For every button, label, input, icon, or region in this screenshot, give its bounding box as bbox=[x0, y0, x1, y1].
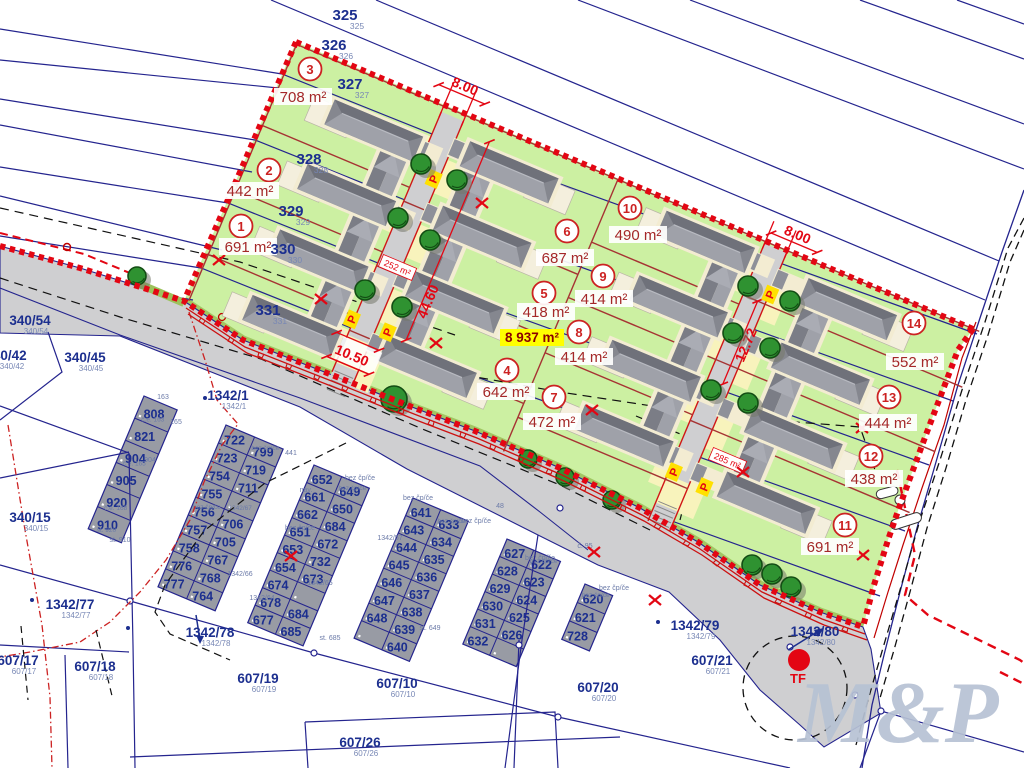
svg-text:č.e. 168: č.e. 168 bbox=[104, 505, 128, 512]
svg-text:640: 640 bbox=[387, 640, 408, 654]
svg-text:414 m²: 414 m² bbox=[581, 291, 628, 308]
svg-text:607/10: 607/10 bbox=[391, 690, 416, 699]
svg-text:607/20: 607/20 bbox=[592, 694, 617, 703]
svg-text:643: 643 bbox=[403, 524, 424, 538]
svg-text:bez čp/če: bez čp/če bbox=[403, 495, 433, 502]
svg-text:441: 441 bbox=[285, 450, 297, 457]
svg-text:723: 723 bbox=[217, 452, 238, 466]
svg-text:757: 757 bbox=[186, 523, 207, 537]
svg-text:bez čp/če: bez čp/če bbox=[193, 504, 221, 511]
svg-text:340/15: 340/15 bbox=[9, 510, 51, 525]
svg-text:607/17: 607/17 bbox=[12, 667, 37, 676]
svg-text:442 m²: 442 m² bbox=[227, 183, 274, 200]
svg-text:607/19: 607/19 bbox=[252, 685, 277, 694]
svg-text:607/21: 607/21 bbox=[691, 653, 733, 668]
svg-text:340/45: 340/45 bbox=[79, 364, 104, 373]
svg-text:638: 638 bbox=[402, 605, 423, 619]
svg-text:705: 705 bbox=[215, 535, 236, 549]
svg-text:340/42: 340/42 bbox=[0, 362, 25, 371]
svg-text:nav.: nav. bbox=[300, 487, 313, 494]
svg-text:1342/80: 1342/80 bbox=[807, 638, 836, 647]
svg-text:1342/64: 1342/64 bbox=[249, 595, 274, 602]
svg-text:905: 905 bbox=[116, 474, 137, 488]
svg-text:646: 646 bbox=[381, 576, 402, 590]
svg-text:755: 755 bbox=[201, 488, 222, 502]
svg-text:607/19: 607/19 bbox=[237, 671, 278, 686]
svg-text:777: 777 bbox=[164, 577, 185, 591]
svg-text:776: 776 bbox=[171, 559, 192, 573]
svg-text:706: 706 bbox=[222, 518, 243, 532]
svg-text:7: 7 bbox=[550, 390, 557, 405]
svg-text:M&P: M&P bbox=[796, 665, 1000, 762]
svg-text:bez čp/če: bez čp/če bbox=[525, 555, 555, 562]
svg-text:8: 8 bbox=[575, 325, 582, 340]
svg-text:438 m²: 438 m² bbox=[851, 471, 898, 488]
svg-text:552 m²: 552 m² bbox=[892, 354, 939, 371]
svg-text:634: 634 bbox=[431, 535, 452, 549]
svg-text:708 m²: 708 m² bbox=[280, 89, 327, 106]
svg-text:607/20: 607/20 bbox=[577, 680, 618, 695]
svg-text:607/18: 607/18 bbox=[74, 659, 116, 674]
svg-text:11: 11 bbox=[838, 518, 852, 533]
svg-text:768: 768 bbox=[200, 571, 221, 585]
svg-text:904: 904 bbox=[144, 457, 156, 464]
svg-text:732: 732 bbox=[310, 555, 331, 569]
svg-text:4: 4 bbox=[503, 363, 511, 378]
svg-text:607/18: 607/18 bbox=[89, 673, 114, 682]
svg-text:165: 165 bbox=[170, 419, 182, 426]
svg-text:641: 641 bbox=[411, 506, 432, 520]
svg-text:490 m²: 490 m² bbox=[615, 227, 662, 244]
svg-text:444 m²: 444 m² bbox=[865, 415, 912, 432]
svg-text:163: 163 bbox=[157, 394, 169, 401]
svg-text:607/26: 607/26 bbox=[354, 749, 379, 758]
svg-text:627: 627 bbox=[504, 547, 525, 561]
svg-text:st. 649: st. 649 bbox=[419, 625, 440, 632]
svg-text:bez čp/če: bez čp/če bbox=[599, 585, 629, 592]
svg-text:691 m²: 691 m² bbox=[807, 539, 854, 556]
svg-text:687 m²: 687 m² bbox=[542, 250, 589, 267]
svg-text:645: 645 bbox=[389, 559, 410, 573]
svg-text:14: 14 bbox=[907, 316, 922, 331]
svg-text:č.e. 165: č.e. 165 bbox=[123, 461, 147, 468]
svg-text:754: 754 bbox=[209, 470, 230, 484]
svg-text:728: 728 bbox=[567, 630, 588, 644]
svg-text:644: 644 bbox=[396, 541, 417, 555]
svg-text:326: 326 bbox=[339, 51, 353, 61]
svg-text:340/15: 340/15 bbox=[24, 524, 49, 533]
svg-text:635: 635 bbox=[424, 553, 445, 567]
svg-text:1342/65: 1342/65 bbox=[307, 580, 332, 587]
svg-text:340/54: 340/54 bbox=[24, 327, 49, 336]
svg-text:331: 331 bbox=[273, 316, 287, 326]
svg-text:685: 685 bbox=[281, 625, 302, 639]
svg-text:691 m²: 691 m² bbox=[225, 239, 272, 256]
svg-text:st. 685: st. 685 bbox=[319, 635, 340, 642]
svg-text:418 m²: 418 m² bbox=[523, 304, 570, 321]
svg-text:340/54: 340/54 bbox=[9, 313, 51, 328]
svg-text:bez čp/če: bez čp/če bbox=[251, 445, 279, 452]
svg-text:607/10: 607/10 bbox=[376, 676, 417, 691]
svg-text:636: 636 bbox=[416, 570, 437, 584]
svg-text:48: 48 bbox=[496, 503, 504, 510]
svg-text:12: 12 bbox=[864, 449, 878, 464]
svg-text:3: 3 bbox=[306, 62, 313, 77]
svg-text:684: 684 bbox=[325, 520, 346, 534]
svg-text:5: 5 bbox=[540, 286, 547, 301]
svg-text:bez čp/če: bez čp/če bbox=[461, 518, 491, 525]
svg-text:1342/1: 1342/1 bbox=[207, 388, 249, 403]
svg-text:325: 325 bbox=[350, 21, 364, 31]
svg-text:684: 684 bbox=[288, 607, 309, 621]
svg-text:630: 630 bbox=[482, 600, 503, 614]
svg-text:631: 631 bbox=[475, 617, 496, 631]
svg-text:10: 10 bbox=[623, 201, 637, 216]
svg-text:628: 628 bbox=[497, 565, 518, 579]
svg-text:bez čp/če: bez čp/če bbox=[338, 485, 366, 492]
svg-text:764: 764 bbox=[192, 589, 213, 603]
svg-text:1342/77: 1342/77 bbox=[62, 611, 91, 620]
svg-text:1342/78: 1342/78 bbox=[202, 639, 231, 648]
svg-text:329: 329 bbox=[296, 217, 310, 227]
svg-text:674: 674 bbox=[268, 578, 289, 592]
svg-text:č.e. 163: č.e. 163 bbox=[141, 416, 165, 423]
svg-text:1342/77: 1342/77 bbox=[46, 597, 95, 612]
svg-text:662: 662 bbox=[297, 508, 318, 522]
svg-text:642 m²: 642 m² bbox=[483, 384, 530, 401]
svg-text:639: 639 bbox=[394, 623, 415, 637]
svg-text:607/17: 607/17 bbox=[0, 653, 39, 668]
svg-text:340/45: 340/45 bbox=[64, 350, 106, 365]
svg-text:711: 711 bbox=[238, 482, 258, 496]
svg-text:8 937 m²: 8 937 m² bbox=[505, 330, 560, 345]
svg-text:st. 920: st. 920 bbox=[97, 527, 117, 534]
svg-text:672: 672 bbox=[317, 537, 338, 551]
svg-text:767: 767 bbox=[207, 553, 228, 567]
svg-text:650: 650 bbox=[332, 502, 353, 516]
svg-text:648: 648 bbox=[367, 611, 388, 625]
svg-text:472 m²: 472 m² bbox=[529, 414, 576, 431]
svg-text:722: 722 bbox=[224, 434, 245, 448]
svg-text:414 m²: 414 m² bbox=[561, 349, 608, 366]
svg-text:677: 677 bbox=[253, 613, 274, 627]
svg-text:1342/66: 1342/66 bbox=[227, 571, 252, 578]
svg-text:758: 758 bbox=[179, 541, 200, 555]
svg-text:1: 1 bbox=[237, 219, 244, 234]
svg-text:340/42: 340/42 bbox=[0, 348, 27, 363]
svg-text:1342/78: 1342/78 bbox=[186, 625, 235, 640]
svg-text:9: 9 bbox=[599, 269, 606, 284]
svg-text:330: 330 bbox=[288, 255, 302, 265]
svg-text:607/26: 607/26 bbox=[339, 735, 381, 750]
svg-text:1342/57: 1342/57 bbox=[377, 535, 402, 542]
svg-text:2: 2 bbox=[265, 163, 272, 178]
svg-text:bez čp/če: bez čp/če bbox=[582, 592, 610, 599]
svg-text:bez čp/če: bez čp/če bbox=[285, 525, 315, 532]
svg-text:st. 910: st. 910 bbox=[109, 537, 130, 544]
svg-text:1342/79: 1342/79 bbox=[671, 618, 720, 633]
svg-text:637: 637 bbox=[409, 588, 430, 602]
svg-text:654: 654 bbox=[275, 561, 296, 575]
svg-text:1342/79: 1342/79 bbox=[687, 632, 716, 641]
svg-text:bez čp/če: bez čp/če bbox=[345, 475, 375, 482]
svg-text:327: 327 bbox=[355, 90, 369, 100]
svg-text:821: 821 bbox=[134, 430, 155, 444]
svg-text:647: 647 bbox=[374, 594, 395, 608]
svg-text:13: 13 bbox=[882, 390, 896, 405]
svg-text:607/21: 607/21 bbox=[706, 667, 731, 676]
svg-text:652: 652 bbox=[312, 473, 333, 487]
svg-text:623: 623 bbox=[524, 576, 545, 590]
svg-text:629: 629 bbox=[490, 582, 511, 596]
svg-text:719: 719 bbox=[245, 464, 266, 478]
svg-text:1342/1: 1342/1 bbox=[222, 402, 247, 411]
svg-text:6: 6 bbox=[563, 224, 570, 239]
svg-text:632: 632 bbox=[468, 635, 489, 649]
svg-text:621: 621 bbox=[575, 611, 596, 625]
svg-text:328: 328 bbox=[314, 165, 328, 175]
